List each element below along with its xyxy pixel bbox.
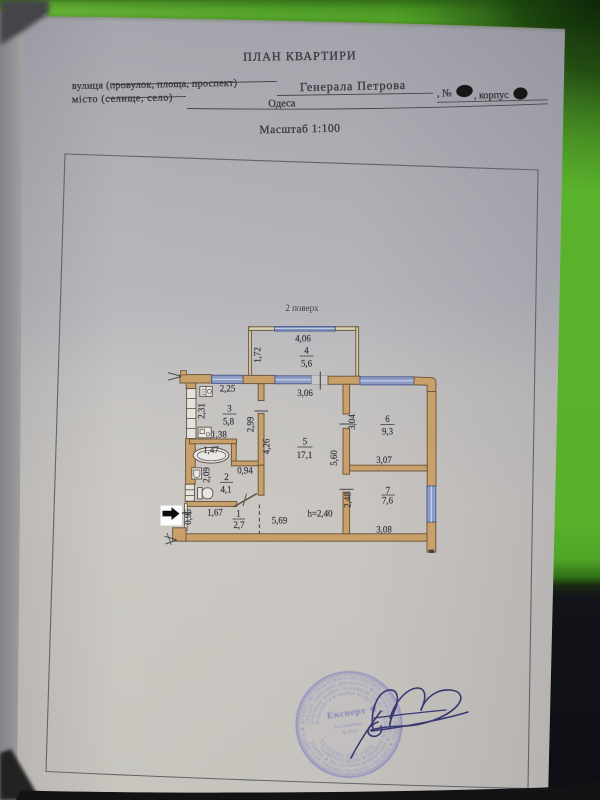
svg-text:, №: , № (437, 88, 452, 99)
svg-text:місто (селище, село): місто (селище, село) (72, 92, 173, 105)
svg-text:0,96: 0,96 (183, 509, 193, 525)
svg-text:2 поверх: 2 поверх (285, 303, 319, 313)
svg-text:6: 6 (385, 414, 390, 424)
svg-text:3: 3 (227, 404, 232, 414)
svg-text:1,47: 1,47 (203, 445, 219, 455)
svg-text:, корпус: , корпус (474, 90, 509, 102)
svg-text:0,94: 0,94 (237, 466, 253, 476)
svg-text:5,60: 5,60 (329, 450, 339, 466)
svg-text:Генерала Петрова: Генерала Петрова (300, 78, 406, 94)
svg-text:2,48: 2,48 (343, 492, 353, 508)
svg-text:2: 2 (224, 472, 228, 482)
svg-text:3,06: 3,06 (297, 388, 313, 398)
svg-text:3,07: 3,07 (376, 455, 392, 465)
svg-text:7: 7 (386, 486, 391, 496)
svg-text:5: 5 (303, 437, 308, 447)
svg-text:1: 1 (236, 509, 240, 519)
svg-text:2,31: 2,31 (197, 403, 207, 419)
svg-text:4,26: 4,26 (262, 438, 272, 454)
svg-text:1,38: 1,38 (211, 430, 227, 440)
svg-text:2,7: 2,7 (233, 520, 245, 530)
svg-text:4,06: 4,06 (295, 334, 311, 344)
svg-text:17,1: 17,1 (297, 450, 313, 460)
svg-text:h=2,40: h=2,40 (308, 509, 334, 519)
svg-text:5,6: 5,6 (301, 359, 313, 369)
svg-text:5,8: 5,8 (223, 417, 235, 427)
svg-text:3,08: 3,08 (376, 525, 392, 535)
svg-text:7,6: 7,6 (382, 496, 394, 506)
svg-text:4: 4 (304, 346, 309, 356)
svg-text:2,25: 2,25 (220, 384, 236, 394)
svg-text:9,3: 9,3 (382, 427, 394, 437)
svg-text:3,04: 3,04 (347, 414, 357, 430)
svg-text:Масштаб 1:100: Масштаб 1:100 (259, 123, 340, 137)
svg-text:1,72: 1,72 (253, 347, 263, 363)
svg-text:Одеса: Одеса (268, 98, 296, 109)
svg-text:2,99: 2,99 (246, 416, 256, 432)
svg-text:1,67: 1,67 (207, 508, 223, 518)
svg-text:ПЛАН КВАРТИРИ: ПЛАН КВАРТИРИ (243, 48, 357, 64)
svg-text:4,1: 4,1 (220, 485, 231, 495)
svg-text:2,09: 2,09 (202, 467, 212, 483)
svg-text:5,69: 5,69 (272, 516, 288, 526)
